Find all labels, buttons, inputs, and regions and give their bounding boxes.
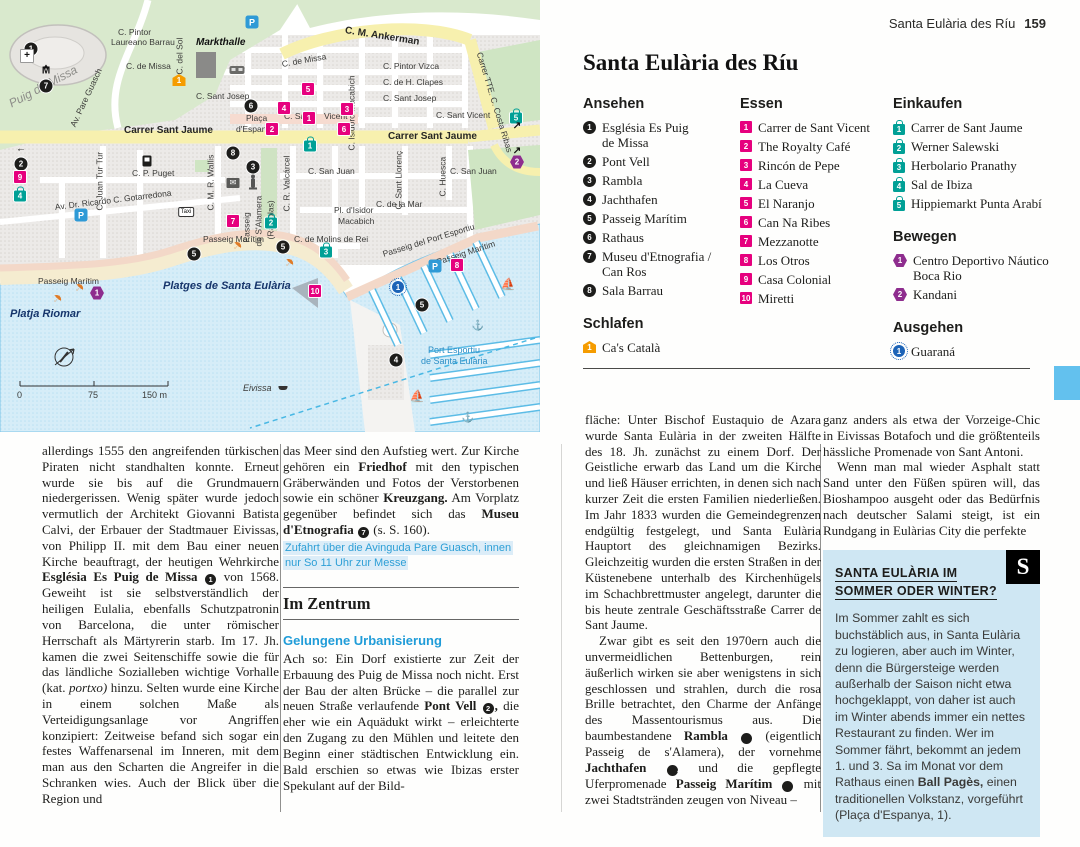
text-column-2: das Meer sind den Aufstieg wert. Zur Kir… <box>283 443 519 793</box>
legend-item: 1Carrer de Sant Jaume <box>893 120 1049 135</box>
legend-item-label: Herbolario Pranathy <box>911 158 1017 173</box>
food-marker-icon: 10 <box>309 285 321 297</box>
legend-item: 1Església Es Puigde Missa <box>583 120 737 150</box>
page-title: Santa Eulària des Ríu <box>583 50 798 76</box>
anchor-icon: ⚓ <box>472 321 484 332</box>
map-label: C. Sant Vicent <box>436 111 490 120</box>
legend-item-label: Museu d'Etnografia /Can Ros <box>602 249 711 279</box>
map-label: C. Huesca <box>439 157 448 197</box>
sight-marker-icon: 6 <box>583 231 596 244</box>
food-marker-icon: 9 <box>14 171 26 183</box>
legend-section-ansehen: Ansehen1Església Es Puigde Missa2Pont Ve… <box>583 96 737 298</box>
paragraph: Ach so: Ein Dorf existierte zur Zeit der… <box>283 651 519 793</box>
text-run: Ball Pagès, <box>918 775 984 789</box>
heading-rule <box>283 619 519 620</box>
text-run: Friedhof <box>358 459 406 474</box>
legend-item: 2Pont Vell <box>583 154 737 169</box>
info-box: S SANTA EULÀRIA IM SOMMER ODER WINTER? I… <box>823 550 1040 836</box>
legend-item: 5Hippiemarkt Punta Arabí <box>893 196 1049 211</box>
legend-item-label: La Cueva <box>758 177 808 192</box>
map-label: 75 <box>88 391 98 400</box>
paragraph: fläche: Unter Bischof Eustaquio de Azara… <box>585 412 821 633</box>
parking-icon: P <box>246 16 259 29</box>
map-ref-badge: 1 <box>205 574 216 585</box>
move-marker-icon: 1 <box>893 254 907 267</box>
legend-heading: Essen <box>740 96 890 112</box>
heading-rule <box>283 587 519 588</box>
text-run: von 1568. Geweiht ist sie selbstverständ… <box>42 569 279 695</box>
legend-heading: Einkaufen <box>893 96 1049 112</box>
info-box-title: SANTA EULÀRIA IM SOMMER ODER WINTER? <box>835 564 1028 600</box>
sub-heading: Gelungene Urbanisierung <box>283 633 519 648</box>
fuel-icon <box>143 156 152 167</box>
sailboat-icon: ⛵ <box>501 277 516 291</box>
text-run: Kreuzgang. <box>383 490 447 505</box>
legend-item-label: Hippiemarkt Punta Arabí <box>911 196 1042 211</box>
map-label: C. de H. Clapes <box>383 78 443 87</box>
legend-item: 2Werner Salewski <box>893 139 1049 154</box>
legend-item-label: Carrer de Sant Jaume <box>911 120 1023 135</box>
move-marker-icon: 2 <box>510 156 524 169</box>
shop-marker-icon: 4 <box>14 191 26 202</box>
legend-item: 1Centro Deportivo NáuticoBoca Rio <box>893 253 1049 283</box>
legend-item-label: Sala Barrau <box>602 283 663 298</box>
legend-item-label: Los Otros <box>758 253 810 268</box>
text-run: fläche: Unter Bischof Eustaquio de Azara… <box>585 412 821 632</box>
umbrella-icon: ☂ <box>49 291 65 307</box>
legend-section-einkaufen: Einkaufen1Carrer de Sant Jaume2Werner Sa… <box>893 96 1049 211</box>
section-heading: Im Zentrum <box>283 594 519 614</box>
food-marker-icon: 7 <box>740 235 752 247</box>
legend-item: 8Los Otros <box>740 253 890 268</box>
mail-icon: ✉ <box>227 178 240 188</box>
category-badge: S <box>1006 550 1040 584</box>
legend-item: 9Casa Colonial <box>740 272 890 287</box>
legend-item-label: El Naranjo <box>758 196 815 211</box>
parking-icon: P <box>429 260 442 273</box>
shop-marker-icon: 1 <box>893 124 905 135</box>
legend-item: 7Mezzanotte <box>740 234 890 249</box>
map-label: de Santa Eulària <box>421 357 488 366</box>
sleep-marker-icon: 1 <box>583 341 596 353</box>
text-run: allerdings 1555 den angreifenden türkisc… <box>42 443 279 569</box>
map-label: Macabich <box>338 217 374 226</box>
umbrella-icon: ☂ <box>281 255 297 271</box>
map-label: C. M. R. Wallis <box>207 155 216 211</box>
map-label: C. R. Valcárcel <box>283 155 292 211</box>
text-run: (s. S. 160). <box>370 522 430 537</box>
legend-item-label: Can Na Ribes <box>758 215 830 230</box>
food-marker-icon: 5 <box>740 197 752 209</box>
food-marker-icon: 3 <box>341 103 353 115</box>
text-run: Rambla <box>684 728 728 743</box>
legend-item: 1Ca's Català <box>583 340 737 355</box>
shop-marker-icon: 4 <box>893 181 905 192</box>
text-column-1: allerdings 1555 den angreifenden türkisc… <box>42 443 279 807</box>
food-marker-icon: 4 <box>278 102 290 114</box>
map-label: Carrer Sant Jaume <box>388 132 477 141</box>
text-run: Església Es Puig de Missa <box>42 569 198 584</box>
text-run <box>476 698 481 713</box>
paragraph: ganz anders als etwa der Vorzeige-Chic i… <box>823 412 1040 459</box>
text-run: Zwar gibt es seit den 1970ern auch die u… <box>585 633 821 743</box>
legend-item-label: The Royalty Café <box>758 139 850 154</box>
text-run: Wenn man mal wieder Asphalt statt Sand u… <box>823 459 1040 537</box>
map-ref-badge: 2 <box>483 703 494 714</box>
sight-marker-icon: 5 <box>188 248 201 261</box>
legend-item-label: Miretti <box>758 291 794 306</box>
legend-column-2: Essen1Carrer de Sant Vicent2The Royalty … <box>740 96 890 324</box>
food-marker-icon: 8 <box>740 254 752 266</box>
column-divider <box>280 444 281 812</box>
legend-item-label: Passeig Marítim <box>602 211 687 226</box>
legend-item: 1Guaraná <box>893 344 1049 359</box>
sight-marker-icon: 4 <box>390 354 403 367</box>
section-divider <box>583 368 1030 369</box>
legend-item: 6Can Na Ribes <box>740 215 890 230</box>
text-run: hinzu. Selten wurde eine Kirche in einem… <box>42 680 279 806</box>
sight-marker-icon: 4 <box>583 193 596 206</box>
anchor-icon: ⚓ <box>462 413 474 424</box>
sight-marker-icon: 2 <box>583 155 596 168</box>
map-label: C. Sant Josep <box>196 92 249 101</box>
paragraph: allerdings 1555 den angreifenden türkisc… <box>42 443 279 807</box>
legend-item-label: Església Es Puigde Missa <box>602 120 689 150</box>
legend-item-label: Rambla <box>602 173 642 188</box>
statue-icon <box>251 179 255 188</box>
sight-marker-icon: 5 <box>583 212 596 225</box>
shop-marker-icon: 2 <box>265 218 277 229</box>
text-run: Pont Vell <box>424 698 476 713</box>
food-marker-icon: 1 <box>303 112 315 124</box>
map-label: Pl. d'Isidor <box>334 206 373 215</box>
food-marker-icon: 10 <box>740 292 752 304</box>
text-column-4: ganz anders als etwa der Vorzeige-Chic i… <box>823 412 1040 837</box>
food-marker-icon: 5 <box>302 83 314 95</box>
legend-heading: Bewegen <box>893 229 1049 245</box>
map-label: Eivissa <box>243 384 272 393</box>
sight-marker-icon: 2 <box>15 158 28 171</box>
legend-item-label: Werner Salewski <box>911 139 999 154</box>
text-run <box>198 569 205 584</box>
running-header-title: Santa Eulària des Ríu <box>889 16 1015 31</box>
food-marker-icon: 2 <box>266 123 278 135</box>
map-label: C. Sant Josep <box>383 94 436 103</box>
sight-marker-icon: 7 <box>40 80 53 93</box>
legend-item-label: Pont Vell <box>602 154 650 169</box>
arrow-ne-icon: ↗ <box>513 146 521 157</box>
map-ref-badge: 3 <box>741 733 752 744</box>
map-label: C. San Juan <box>450 167 497 176</box>
map-label: 150 m <box>142 391 167 400</box>
map-label: Platges de Santa Eulària <box>163 282 291 291</box>
legend-item: 1Carrer de Sant Vicent <box>740 120 890 135</box>
legend-item-label: Rincón de Pepe <box>758 158 840 173</box>
sight-marker-icon: 5 <box>277 241 290 254</box>
legend-heading: Schlafen <box>583 316 737 332</box>
access-note: Zufahrt über die Avinguda Pare Guasch, i… <box>283 541 519 571</box>
map-label: C. de Molins de Rei <box>294 235 368 244</box>
legend-item: 10Miretti <box>740 291 890 306</box>
food-marker-icon: 4 <box>740 178 752 190</box>
map-label: Carrer Sant Jaume <box>124 126 213 135</box>
paragraph: Wenn man mal wieder Asphalt statt Sand u… <box>823 459 1040 538</box>
running-header: Santa Eulària des Ríu159 <box>889 16 1046 31</box>
boat-icon <box>279 386 288 390</box>
legend-section-bewegen: Bewegen1Centro Deportivo NáuticoBoca Rio… <box>893 229 1049 302</box>
shop-marker-icon: 3 <box>320 247 332 258</box>
legend-section-ausgehen: Ausgehen1Guaraná <box>893 320 1049 359</box>
church-icon: + <box>20 49 34 63</box>
map-label: Passeig Marítim <box>38 277 99 286</box>
food-marker-icon: 9 <box>740 273 752 285</box>
legend-item: 2Kandani <box>893 287 1049 302</box>
shop-marker-icon: 5 <box>893 200 905 211</box>
legend-item-label: Carrer de Sant Vicent <box>758 120 870 135</box>
move-marker-icon: 1 <box>90 287 104 300</box>
food-marker-icon: 3 <box>740 159 752 171</box>
map-label: Av. Dr. Ricardo C. Gotarredona <box>54 189 172 212</box>
bus-icon <box>230 66 245 74</box>
legend-item-label: Kandani <box>913 287 957 302</box>
legend-item: 3Herbolario Pranathy <box>893 158 1049 173</box>
sailboat-icon: ⛵ <box>410 389 425 403</box>
map-label: 0 <box>17 391 22 400</box>
legend-item: 5Passeig Marítim <box>583 211 737 226</box>
sight-marker-icon: 1 <box>583 121 596 134</box>
text-run: Im Sommer zahlt es sich buchstäblich aus… <box>835 611 1025 789</box>
legend-item-label: Jachthafen <box>602 192 658 207</box>
sight-marker-icon: 3 <box>247 161 260 174</box>
food-marker-icon: 6 <box>338 123 350 135</box>
move-marker-icon: 2 <box>893 288 907 301</box>
shop-marker-icon: 1 <box>304 141 316 152</box>
legend-item-label: Casa Colonial <box>758 272 831 287</box>
legend-item-label: Sal de Ibiza <box>911 177 972 192</box>
arrow-left-icon: ← <box>16 144 26 155</box>
map-label: C. San Juan <box>308 167 355 176</box>
text-run: ganz anders als etwa der Vorzeige-Chic i… <box>823 412 1040 459</box>
map-label: C. Pintor Vizca <box>383 62 439 71</box>
map-overlay: C. PintorLaureano BarrauMarkthalleC. de … <box>0 0 540 432</box>
map-ref-badge: 5 <box>782 781 793 792</box>
legend-item: 4Sal de Ibiza <box>893 177 1049 192</box>
sight-marker-icon: 3 <box>583 174 596 187</box>
legend-column-3: Einkaufen1Carrer de Sant Jaume2Werner Sa… <box>893 96 1049 377</box>
legend-item: 4La Cueva <box>740 177 890 192</box>
map-ref-badge: 7 <box>358 527 369 538</box>
text-column-3: fläche: Unter Bischof Eustaquio de Azara… <box>585 412 821 808</box>
sight-marker-icon: 7 <box>583 250 596 263</box>
sight-marker-icon: 5 <box>416 299 429 312</box>
food-marker-icon: 6 <box>740 216 752 228</box>
legend-item: 4Jachthafen <box>583 192 737 207</box>
paragraph: das Meer sind den Aufstieg wert. Zur Kir… <box>283 443 519 538</box>
go-marker-icon: 1 <box>893 345 905 357</box>
legend-item: 3Rambla <box>583 173 737 188</box>
legend-item: 7Museu d'Etnografia /Can Ros <box>583 249 737 279</box>
shop-marker-icon: 3 <box>893 162 905 173</box>
city-map: C. PintorLaureano BarrauMarkthalleC. de … <box>0 0 540 432</box>
legend-item-label: Rathaus <box>602 230 644 245</box>
legend-item-label: Guaraná <box>911 344 955 359</box>
map-label: C. M. Ankerman <box>344 26 420 47</box>
food-marker-icon: 2 <box>740 140 752 152</box>
paragraph: Zwar gibt es seit den 1970ern auch die u… <box>585 633 821 807</box>
sight-marker-icon: 6 <box>245 100 258 113</box>
map-label: Plaça <box>246 114 267 123</box>
map-label: Platja Riomar <box>10 310 80 319</box>
map-label: C. Pintor <box>118 28 151 37</box>
map-label: C. de la Mar <box>376 200 422 209</box>
arrow-ne-icon: ↗ <box>513 121 521 132</box>
parking-icon: P <box>75 209 88 222</box>
text-run <box>354 522 357 537</box>
legend-item: 5El Naranjo <box>740 196 890 211</box>
legend-item: 3Rincón de Pepe <box>740 158 890 173</box>
food-marker-icon: 7 <box>227 215 239 227</box>
text-run: portxo) <box>69 680 107 695</box>
page-gutter-line <box>561 444 562 812</box>
food-marker-icon: 8 <box>451 259 463 271</box>
map-label: C. P. Puget <box>132 169 174 178</box>
legend-column-1: Ansehen1Església Es Puigde Missa2Pont Ve… <box>583 96 737 373</box>
map-label: Laureano Barrau <box>111 38 175 47</box>
shop-marker-icon: 2 <box>893 143 905 154</box>
text-run: Passeig Marítim <box>676 776 773 791</box>
legend-item: 6Rathaus <box>583 230 737 245</box>
food-marker-icon: 1 <box>740 121 752 133</box>
legend-item-label: Ca's Català <box>602 340 660 355</box>
page-number: 159 <box>1024 16 1046 31</box>
legend-section-essen: Essen1Carrer de Sant Vicent2The Royalty … <box>740 96 890 306</box>
map-label: Passeig Marítim <box>436 239 497 266</box>
page-edge-tab <box>1054 366 1080 400</box>
legend-item-label: Centro Deportivo NáuticoBoca Rio <box>913 253 1049 283</box>
monument-icon: M <box>0 66 316 77</box>
map-ref-badge: 4 <box>667 765 678 776</box>
legend-section-schlafen: Schlafen1Ca's Català <box>583 316 737 355</box>
legend-item: 8Sala Barrau <box>583 283 737 298</box>
map-label: Markthalle <box>196 38 245 47</box>
map-label: Port Esportiu <box>428 346 480 355</box>
legend-heading: Ausgehen <box>893 320 1049 336</box>
taxi-icon: Taxi <box>178 207 194 217</box>
text-run: Jachthafen <box>585 760 646 775</box>
map-label: Carrer TTE. C. Costa Ribas <box>475 51 514 153</box>
legend-item: 2The Royalty Café <box>740 139 890 154</box>
info-box-text: Im Sommer zahlt es sich buchstäblich aus… <box>835 610 1028 823</box>
sight-marker-icon: 8 <box>583 284 596 297</box>
legend-item-label: Mezzanotte <box>758 234 819 249</box>
legend-heading: Ansehen <box>583 96 737 112</box>
go-marker-icon: 1 <box>392 281 404 293</box>
sight-marker-icon: 8 <box>227 147 240 160</box>
